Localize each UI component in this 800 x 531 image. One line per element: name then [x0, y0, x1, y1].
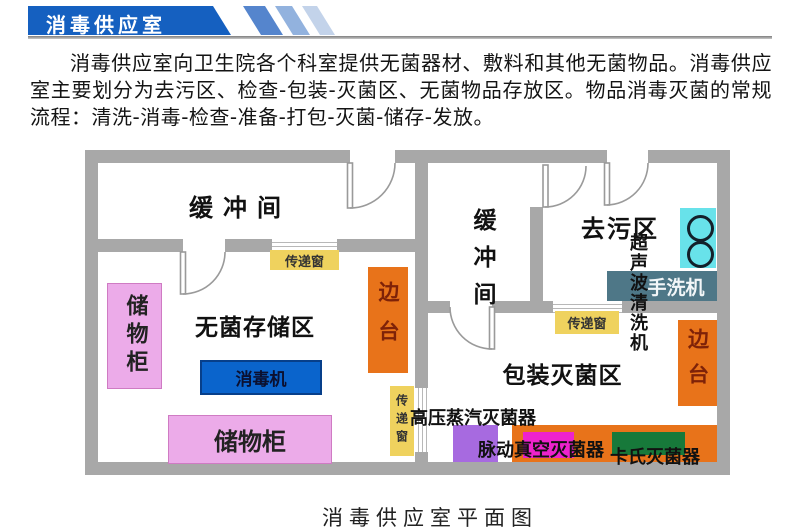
door-arc-decontamination [607, 163, 648, 205]
transfer-window-mid-label: 传递窗 [394, 394, 411, 448]
wall-b-2 [225, 239, 272, 252]
door-arc-buffer-mid [545, 166, 586, 207]
wall-b-1 [85, 239, 183, 252]
room-label-sterile-storage: 无菌存储区 [175, 308, 335, 342]
storage-cabinet-vertical-label: 储物柜 [119, 294, 151, 378]
sink-basin-icon [687, 241, 714, 268]
door-leaf-buffer-left [348, 163, 353, 208]
wall-top-2 [395, 150, 607, 163]
sink-basin-icon [687, 215, 714, 242]
door-arc-buffer-left [350, 163, 395, 208]
wall-a-1 [415, 163, 428, 388]
door-leaf-storage [181, 252, 186, 294]
wall-d-1 [415, 301, 450, 313]
storage-cabinet-horizontal-label: 储物柜 [214, 422, 286, 457]
transfer-window-right-tag: 传递窗 [555, 311, 619, 334]
side-table-right: 边台 [678, 320, 717, 406]
side-table-right-label: 边台 [683, 328, 713, 398]
side-table-left-label: 边台 [373, 281, 403, 359]
wall-top-1 [85, 150, 350, 163]
room-label-buffer-left: 缓冲间 [160, 188, 320, 223]
cassette-sterilizer-label: 卡氏灭菌器 [610, 443, 700, 469]
transfer-window-right-label: 传递窗 [567, 313, 606, 332]
wall-d-2 [492, 301, 553, 313]
wall-a-2 [415, 452, 428, 462]
wall-right [717, 150, 730, 475]
plan-caption: 消毒供应室平面图 [130, 502, 730, 531]
banner-stripe-1 [243, 6, 283, 35]
disinfector-box: 消毒机 [200, 360, 322, 395]
wall-c [530, 207, 543, 301]
room-label-decontamination: 去污区 [570, 209, 670, 244]
wall-left [85, 150, 98, 475]
page-title: 消毒供应室 [46, 9, 166, 38]
door-leaf-buffer-mid [543, 165, 548, 207]
storage-cabinet-horizontal: 储物柜 [168, 415, 332, 464]
ultrasonic-cleaner-label: 超声波清洗机 [624, 233, 650, 359]
side-table-left: 边台 [368, 267, 408, 373]
room-label-packaging: 包装灭菌区 [480, 356, 645, 390]
door-arc-storage [183, 252, 225, 294]
storage-cabinet-vertical: 储物柜 [107, 283, 162, 389]
hand-washer-label: 手洗机 [647, 273, 704, 300]
pulse-vacuum-sterilizer-label: 脉动真空灭菌器 [478, 436, 604, 462]
transfer-window-left-tag: 传递窗 [270, 250, 339, 270]
door-leaf-decontamination [605, 163, 610, 205]
document-page: 消毒供应室 消毒供应室向卫生院各个科室提供无菌器材、敷料和其他无菌物品。消毒供应… [0, 0, 800, 531]
room-label-buffer-mid: 缓冲间 [465, 193, 499, 333]
steam-sterilizer-label: 高压蒸汽灭菌器 [410, 404, 536, 430]
disinfector-label: 消毒机 [236, 365, 287, 390]
intro-paragraph: 消毒供应室向卫生院各个科室提供无菌器材、敷料和其他无菌物品。消毒供应室主要划分为… [30, 50, 772, 131]
transfer-window-left-label: 传递窗 [285, 251, 324, 270]
